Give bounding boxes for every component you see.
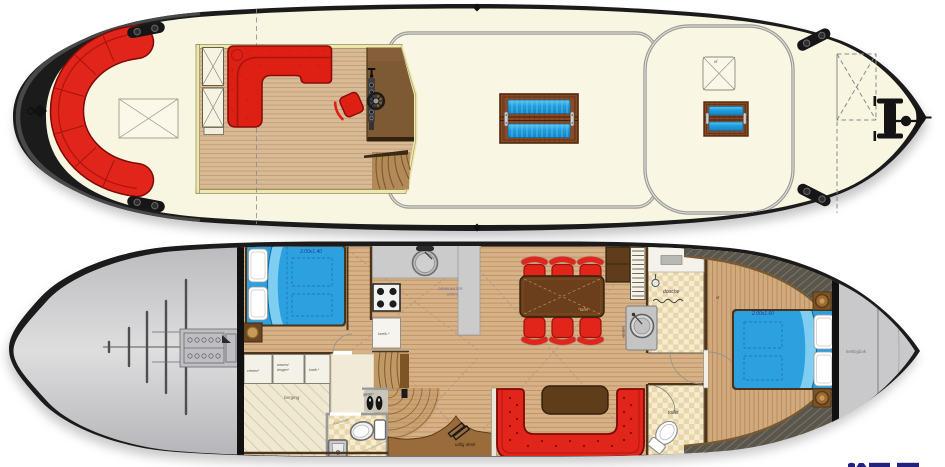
svg-text:kettingbak: kettingbak [846, 349, 867, 354]
svg-text:berging: berging [284, 395, 300, 400]
svg-text:garder*: garder* [363, 393, 374, 397]
svg-text:2.00x1.40: 2.00x1.40 [299, 249, 322, 255]
svg-text:wasem/: wasem/ [277, 363, 290, 367]
svg-text:drogen*: drogen* [277, 368, 290, 372]
svg-text:*tafel: *tafel [578, 307, 589, 312]
svg-text:(2000 l): (2000 l) [447, 293, 458, 297]
svg-text:uitlig desk: uitlig desk [455, 442, 476, 447]
svg-text:vriezen*: vriezen* [247, 369, 260, 373]
svg-text:DRINKWATER: DRINKWATER [438, 287, 463, 291]
svg-text:wastafel: wastafel [622, 326, 626, 338]
svg-text:2.00x1.60: 2.00x1.60 [751, 311, 774, 317]
svg-text:toilet: toilet [668, 410, 679, 416]
svg-text:koelk.*: koelk.* [378, 332, 390, 336]
svg-text:koelk.*: koelk.* [309, 368, 320, 372]
svg-text:douche: douche [663, 289, 680, 295]
